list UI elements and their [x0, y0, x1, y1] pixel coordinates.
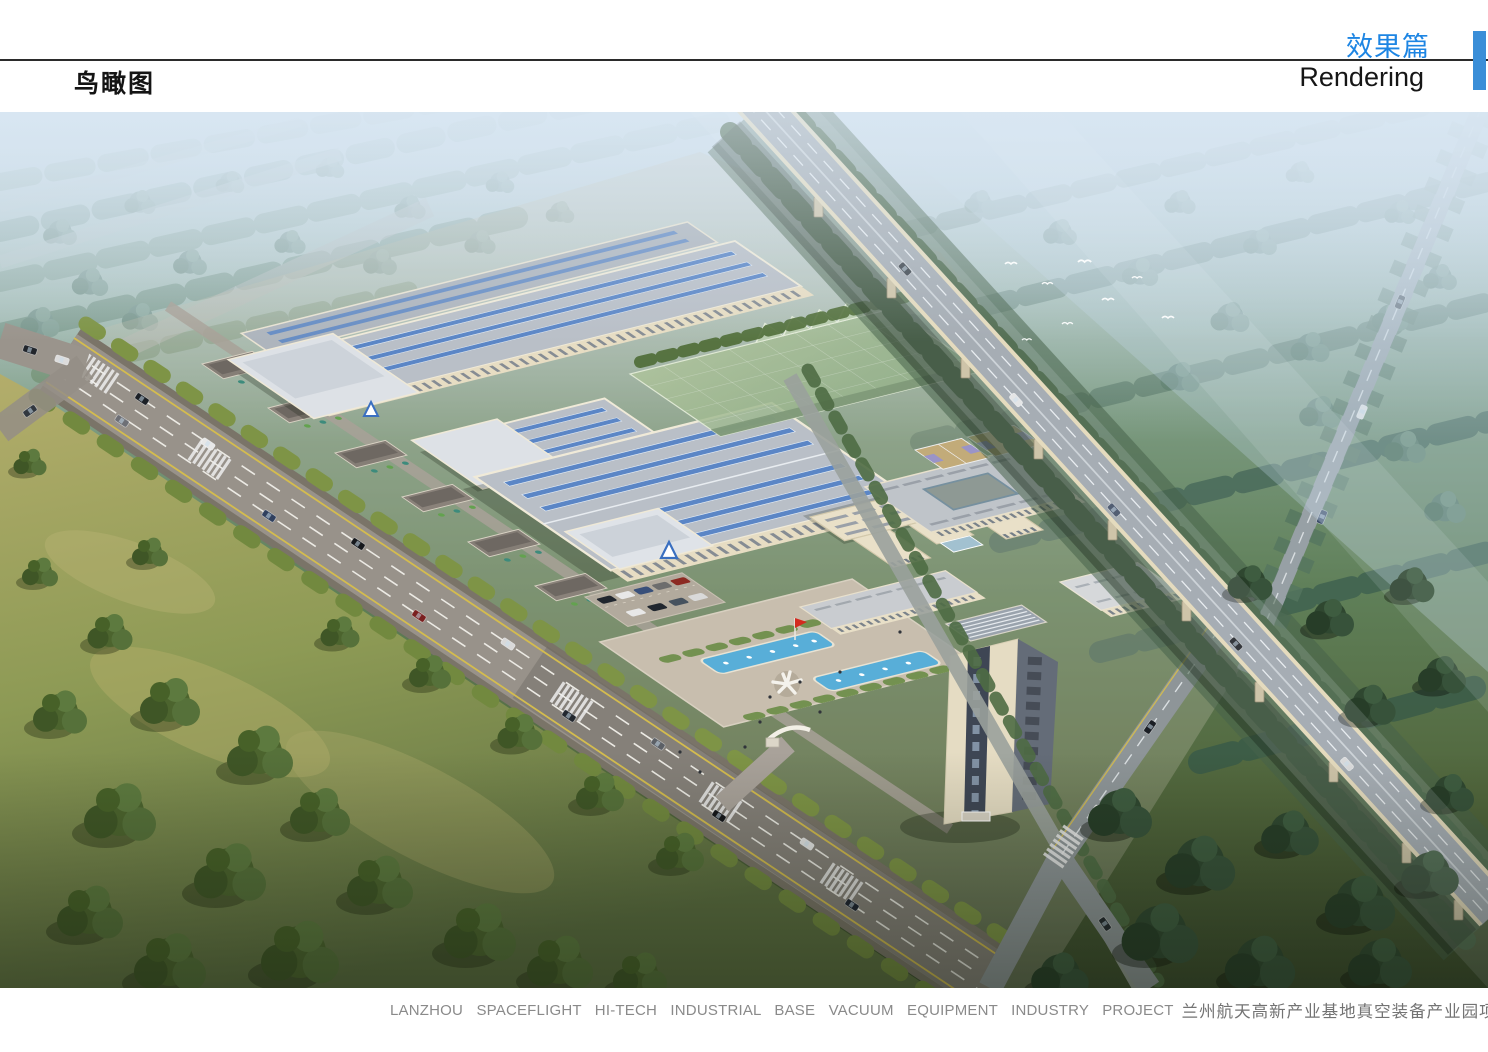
section-tab-marker — [1473, 31, 1486, 90]
aerial-rendering-image — [0, 112, 1488, 988]
header-divider-line — [0, 59, 1488, 61]
caption-chinese: 兰州航天高新产业基地真空装备产业园项目 — [1182, 998, 1488, 1022]
rendering-scene — [0, 112, 1488, 988]
section-title-english: Rendering — [1299, 62, 1424, 93]
page-title: 鸟瞰图 — [74, 64, 155, 100]
project-caption: LANZHOU SPACEFLIGHT HI-TECH INDUSTRIAL B… — [390, 999, 1488, 1021]
section-title-chinese: 效果篇 — [1346, 25, 1430, 64]
presentation-page: 鸟瞰图 效果篇 Rendering — [0, 0, 1488, 1052]
caption-english: LANZHOU SPACEFLIGHT HI-TECH INDUSTRIAL B… — [390, 1002, 1174, 1019]
top-haze-soft — [0, 112, 1488, 342]
bottom-vignette — [0, 752, 1488, 988]
